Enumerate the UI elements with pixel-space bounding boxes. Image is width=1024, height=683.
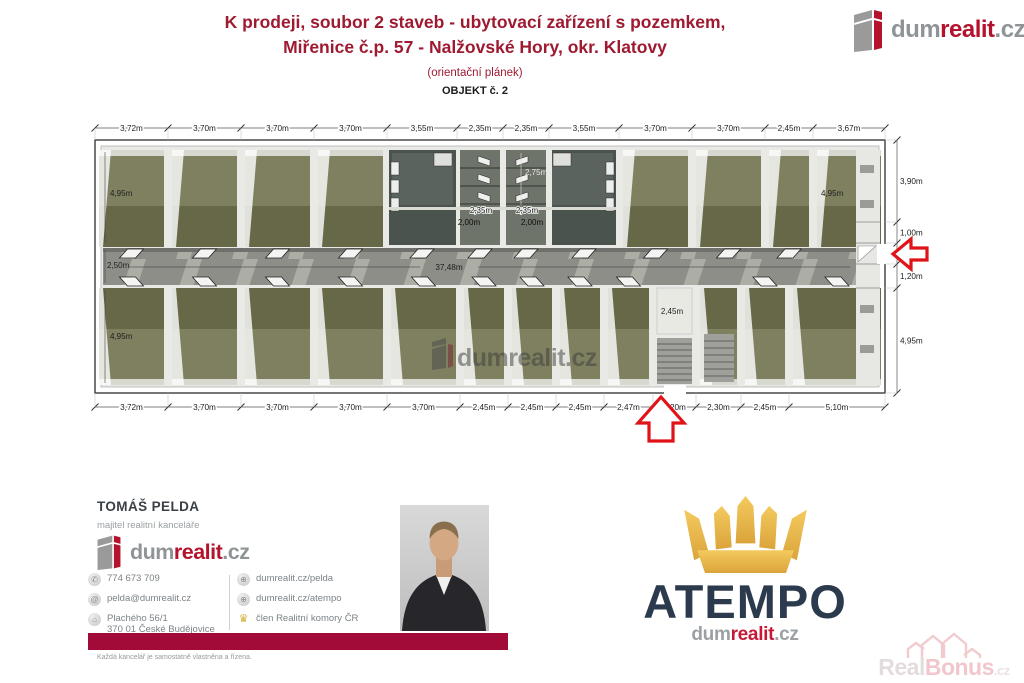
plan-watermark: dumrealit.cz: [432, 338, 597, 372]
dumrealit-logo-text: dumrealit.cz: [130, 540, 249, 565]
agent-role: majitel realitní kanceláře: [97, 520, 199, 531]
phone-number: 774 673 709: [107, 573, 160, 584]
realbonus-watermark: RealBonus.cz: [868, 632, 1020, 682]
web-icon: ⊕: [237, 573, 250, 586]
dimension-label: 3,55m: [411, 124, 434, 133]
phone-icon: ✆: [88, 573, 101, 586]
dimension-label: 3,55m: [573, 124, 596, 133]
dim-right-room: 4,95m: [821, 189, 844, 198]
dim-san-w2: 2,35m: [516, 206, 539, 215]
location-icon: ⌂: [88, 613, 101, 626]
address-text: Plachého 56/1370 01 České Budějovice: [107, 613, 215, 635]
web-url-1: dumrealit.cz/pelda: [256, 573, 333, 584]
email-address: pelda@dumrealit.cz: [107, 593, 191, 604]
dim-vestibule: 2,45m: [661, 307, 684, 316]
web-row-2: ⊕ dumrealit.cz/atempo: [237, 593, 407, 606]
logo-cz: .cz: [774, 624, 798, 645]
logo-cz: .cz: [222, 540, 249, 564]
dimension-label: 3,70m: [339, 403, 362, 412]
dim-san-d1: 2,00m: [458, 218, 481, 227]
atempo-title: ATEMPO: [615, 574, 875, 629]
logo-dum: dum: [691, 624, 730, 645]
watermark-text: dumrealit.cz: [457, 344, 597, 372]
dimension-label: 2,35m: [469, 124, 492, 133]
dim-left-bottom: 4,95m: [110, 332, 133, 341]
logo-dum: dum: [130, 540, 174, 564]
dimension-label: 3,72m: [120, 403, 143, 412]
email-icon: @: [88, 593, 101, 606]
dimension-row-bottom: 3,72m3,70m3,70m3,70m3,70m2,45m2,45m2,45m…: [92, 393, 889, 412]
dimension-label: 3,72m: [120, 124, 143, 133]
atempo-subtitle: dumrealit.cz: [615, 624, 875, 646]
dimension-label: 2,45m: [569, 403, 592, 412]
footer-red-bar: [88, 633, 508, 650]
membership-row: ♛ člen Realitní komory ČR: [237, 613, 407, 626]
dim-san-height: 2,75m: [525, 168, 548, 177]
email-row: @ pelda@dumrealit.cz: [88, 593, 226, 606]
card-dumrealit-logo: dumrealit.cz: [95, 534, 249, 570]
dimension-label: 2,35m: [515, 124, 538, 133]
entrance-arrow-left-icon: [893, 239, 927, 269]
crown-icon: ♛: [237, 613, 250, 626]
dimension-label: 3,70m: [193, 403, 216, 412]
phone-row: ✆ 774 673 709: [88, 573, 226, 586]
atempo-crown-icon: [673, 492, 818, 576]
web-icon: ⊕: [237, 593, 250, 606]
dimension-column-right: 3,90m1,00m1,25m1,20m4,95m: [885, 137, 923, 397]
agent-name: TOMÁŠ PELDA: [97, 499, 199, 514]
dim-left-corridor: 2,50m: [107, 261, 130, 270]
dimension-label: 3,70m: [266, 124, 289, 133]
dimension-label: 3,70m: [644, 124, 667, 133]
dimension-label: 3,90m: [900, 177, 923, 186]
dimension-label: 1,20m: [900, 272, 923, 281]
contact-divider: [229, 575, 230, 630]
dim-san-d2: 2,00m: [521, 218, 544, 227]
dimension-label: 3,67m: [838, 124, 861, 133]
portrait-photo: [400, 505, 489, 631]
dimension-label: 2,30m: [707, 403, 730, 412]
dimension-label: 2,45m: [473, 403, 496, 412]
dumrealit-logo-icon: [95, 534, 123, 570]
logo-realit: realit: [731, 624, 775, 645]
dimension-label: 5,10m: [826, 403, 849, 412]
dimension-label: 3,70m: [412, 403, 435, 412]
address-row: ⌂ Plachého 56/1370 01 České Budějovice: [88, 613, 226, 635]
franchise-disclaimer: Každá kancelář je samostatně vlastněna a…: [97, 654, 252, 661]
dimension-label: 1,00m: [900, 229, 923, 238]
dimension-label: 2,47m: [617, 403, 640, 412]
web-row-1: ⊕ dumrealit.cz/pelda: [237, 573, 407, 586]
dim-left-top: 4,95m: [110, 189, 133, 198]
dimension-label: 2,45m: [754, 403, 777, 412]
membership-text: člen Realitní komory ČR: [256, 613, 358, 624]
dimension-label: 2,45m: [778, 124, 801, 133]
dimension-label: 3,70m: [266, 403, 289, 412]
flyer-page: K prodeji, soubor 2 staveb - ubytovací z…: [0, 0, 1024, 683]
dim-san-w1: 2,35m: [470, 206, 493, 215]
contact-column-right: ⊕ dumrealit.cz/pelda ⊕ dumrealit.cz/atem…: [237, 573, 407, 626]
dimension-label: 4,95m: [900, 337, 923, 346]
dimension-label: 3,70m: [193, 124, 216, 133]
dimension-row-top: 3,72m3,70m3,70m3,70m3,55m2,35m2,35m3,55m…: [92, 124, 889, 140]
dimension-label: 2,45m: [521, 403, 544, 412]
logo-realit: realit: [174, 540, 222, 564]
agent-photo: [400, 505, 489, 631]
realbonus-text: RealBonus.cz: [868, 654, 1020, 681]
dimension-label: 3,70m: [339, 124, 362, 133]
dimension-label: 3,70m: [717, 124, 740, 133]
web-url-2: dumrealit.cz/atempo: [256, 593, 342, 604]
corridor-length-label: 37,48m: [435, 263, 462, 272]
contact-column-left: ✆ 774 673 709 @ pelda@dumrealit.cz ⌂ Pla…: [88, 573, 226, 635]
